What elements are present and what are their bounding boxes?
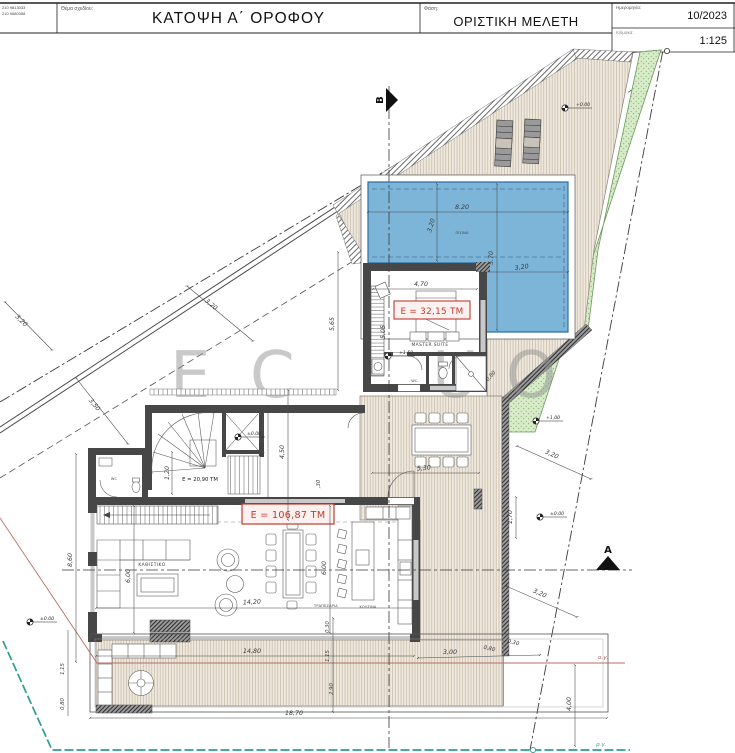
stair-lift-core: LIFT WC E = 20,90 TM: [88, 405, 365, 498]
dim-fence-c: 3,20: [14, 314, 29, 329]
dim-east-height: 4,00: [566, 697, 573, 711]
building-line-label: ο.γ.: [598, 655, 609, 661]
dim-bl-b: 0,80: [60, 697, 66, 709]
dim-bl-a: 1,15: [60, 662, 66, 674]
master-suite-label: MASTER SUITE: [411, 342, 448, 348]
kitchen-label: ΚΟΥΖΙΝΑ: [359, 605, 376, 609]
dim-west-height: 8,60: [67, 553, 74, 567]
dim-balcony-width: 14,80: [243, 648, 261, 655]
dim-terrace-dining: 5,30: [417, 465, 431, 473]
dim-fence-b: 3,50: [87, 397, 101, 412]
living-furniture: [97, 506, 412, 632]
dim-landing-a: 1,20: [164, 466, 171, 480]
dim-master-width: 4,70: [414, 281, 428, 288]
dim-living-height: 6,00: [125, 569, 132, 583]
level-west: ±0.00: [40, 616, 54, 622]
scale-value: 1:125: [699, 35, 727, 47]
dim-deck-height: 5,65: [329, 317, 336, 331]
master-area-label: E = 32,15 TM: [400, 307, 463, 317]
scale-label: Κλίμακα:: [616, 30, 634, 35]
pool-label: ΠΙΣΙΝΑ: [455, 231, 469, 235]
section-b-marker: B: [375, 96, 386, 104]
drawing-title: ΚΑΤΟΨΗ Α΄ ΟΡΟΦΟΥ: [57, 10, 420, 28]
floor-plan-page: ECUO ΠΙΣΙΝΑ: [0, 0, 735, 753]
phase-value: ΟΡΙΣΤΙΚΗ ΜΕΛΕΤΗ: [420, 14, 612, 29]
dim-master-height: 5,05: [380, 325, 387, 339]
dim-right-c: 3,20: [532, 588, 548, 600]
dim-landing-c: 4,50: [279, 445, 286, 459]
dim-landing-d: ,30: [316, 479, 322, 488]
floor-plan-drawing: ECUO ΠΙΣΙΝΑ: [0, 0, 735, 753]
master-wc-label: WC.: [411, 379, 419, 383]
contact-line-2: 210 9680358: [2, 11, 25, 17]
dim-br-a: 3,00: [443, 649, 457, 656]
dim-bm-c: 2,90: [329, 682, 335, 694]
dim-kitchen-height: 6,00: [321, 561, 328, 575]
dining-label: ΤΡΑΠΕΖΑΡΙΑ: [313, 604, 338, 608]
contact-info: 210 9813033 210 9680358: [2, 5, 25, 17]
dim-living-width: 14,20: [243, 599, 261, 607]
dim-bm-a: 0,30: [325, 620, 331, 632]
date-label: Ημερομηνία:: [616, 5, 641, 10]
wc-label: WC: [111, 477, 118, 481]
dim-bm-b: 1,15: [325, 649, 331, 661]
level-upper-deck: +1.50: [399, 350, 413, 356]
landing-area-label: E = 20,90 TM: [182, 477, 218, 483]
dim-fence-a: 3,20: [203, 298, 218, 312]
lift-label: LIFT: [240, 451, 249, 455]
dim-landing-b: 3,70: [259, 443, 266, 457]
date-value: 10/2023: [687, 10, 727, 22]
level-deck-top: +0.00: [576, 102, 590, 108]
dim-pool-width: 8.20: [455, 204, 469, 211]
level-landing: ±0.00: [247, 431, 261, 437]
street-line-label: ρ.γ.: [596, 742, 607, 748]
living-label: ΚΑΘΙΣΤΙΚΟ: [138, 562, 165, 568]
level-garden: +1,00: [546, 415, 560, 421]
dim-pool-length: 5.70: [488, 251, 495, 265]
section-a-marker: A: [604, 545, 612, 556]
phase-label: Φάση:: [424, 6, 438, 12]
dim-slab-width: 18,70: [285, 710, 303, 717]
dim-right-b: 1,70: [507, 510, 514, 524]
level-east: ±0.00: [550, 511, 564, 517]
